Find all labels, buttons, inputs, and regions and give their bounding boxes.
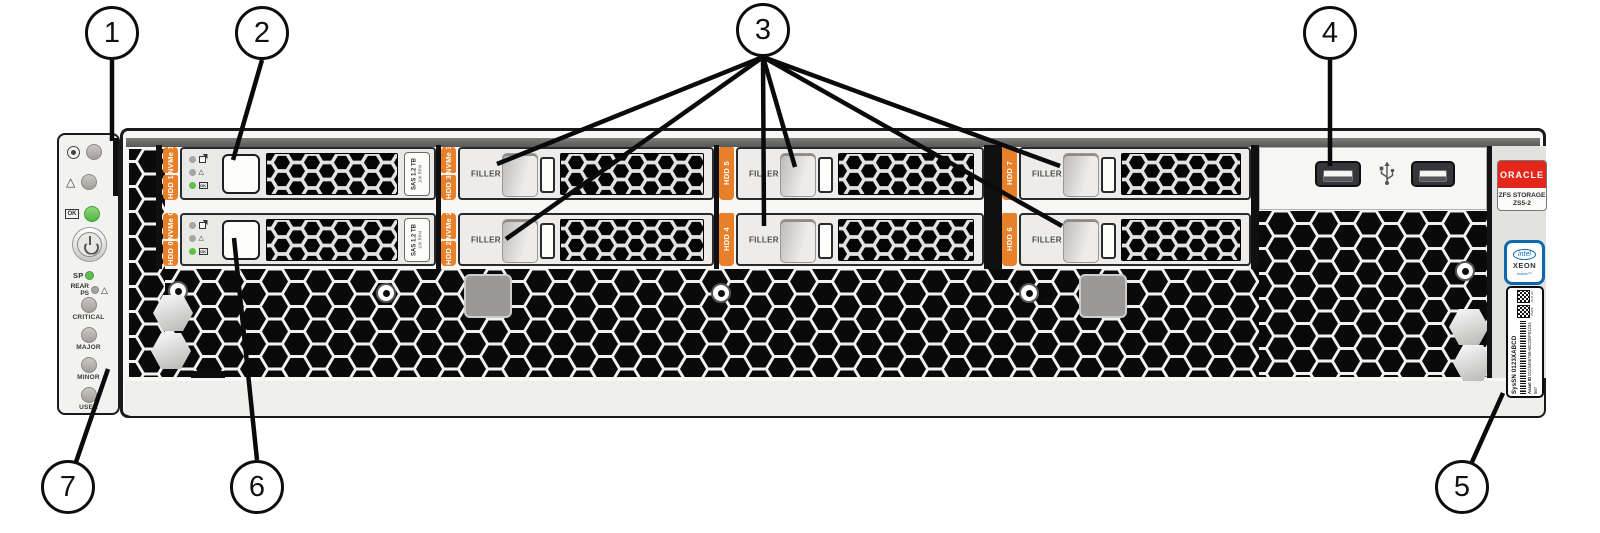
filler-bay-hdd-6: FILLER	[1019, 213, 1251, 266]
rear-ps-led	[91, 286, 99, 294]
bay-divider	[984, 145, 1002, 269]
ok-icon: OK	[199, 248, 208, 255]
alarm-row-critical: CRITICAL	[59, 297, 118, 321]
drive-ok-led	[189, 182, 196, 189]
panel-button-blank	[1079, 274, 1127, 318]
slot-label-text: HDD 3	[444, 175, 453, 199]
slot-label-text: NVMe 3	[444, 147, 453, 173]
drive-release-latch[interactable]	[222, 220, 260, 260]
oracle-logo: ORACLE	[1498, 161, 1546, 188]
filler-label: FILLER	[1032, 235, 1062, 244]
power-button	[72, 227, 107, 262]
sp-led-row: SP	[73, 271, 94, 280]
slot-label-hdd-1: NVMe 1HDD 1	[163, 147, 178, 200]
drive-fault-led	[189, 169, 196, 176]
mesh-pattern	[267, 154, 397, 194]
filler-mesh-face	[838, 153, 974, 195]
drive-remove-led	[189, 156, 196, 163]
drive-bay-hdd-0[interactable]: △OKSAS 1.2 TB10K RPM	[180, 213, 436, 266]
filler-bay-hdd-7: FILLER	[1019, 147, 1251, 200]
mesh-pattern	[267, 220, 397, 260]
slot-label-segment: HDD 6	[1002, 213, 1017, 266]
alarm-row-major: MAJOR	[59, 327, 118, 351]
fault-icon: △	[199, 235, 204, 242]
ok-indicator-row: OK	[65, 206, 100, 222]
filler-latch-lever[interactable]	[1063, 219, 1099, 263]
alarm-row-minor: MINOR	[59, 357, 118, 381]
slot-label-text: HDD 7	[1005, 161, 1014, 185]
drive-led-row: OK	[189, 181, 208, 190]
drive-led-column: △OK	[189, 221, 208, 256]
drive-led-row	[189, 155, 208, 164]
filler-mesh-face	[560, 153, 704, 195]
fault-icon: △	[66, 176, 75, 188]
slot-label-segment: HDD 0	[163, 241, 178, 267]
slot-label-text: NVMe 0	[166, 213, 175, 239]
rear-label: REAR	[61, 283, 89, 290]
filler-latch-lever[interactable]	[780, 153, 816, 197]
usb-port-2[interactable]	[1411, 161, 1455, 187]
fault-indicator-row: △	[66, 174, 97, 190]
drive-bay-hdd-1[interactable]: △OKSAS 1.2 TB10K RPM	[180, 147, 436, 200]
filler-bay-hdd-2: FILLER	[458, 213, 714, 266]
ok-icon: OK	[199, 182, 208, 189]
qr-code-pmrc	[1517, 305, 1530, 318]
slot-label-hdd-5: HDD 5	[719, 147, 734, 200]
system-serial-number: SysSN 0123XABCD	[1512, 321, 1518, 394]
oracle-product-label: ORACLE ZFS STORAGE ZS5-2	[1497, 160, 1547, 211]
rear-ps-led-row: REAR PS △	[61, 283, 108, 298]
screw-hole	[1455, 261, 1475, 281]
slot-label-hdd-3: NVMe 3HDD 3	[441, 147, 456, 200]
filler-latch-tab	[1101, 223, 1116, 259]
vent-dot	[1147, 297, 1153, 303]
major-led	[81, 327, 97, 343]
qr-caption: DoD UII	[1530, 291, 1534, 302]
drive-led-row: OK	[189, 247, 208, 256]
drive-ok-led	[189, 248, 196, 255]
minor-led	[81, 357, 97, 373]
slot-label-text: NVMe 1	[166, 147, 175, 173]
filler-latch-tab	[540, 157, 555, 193]
major-label: MAJOR	[59, 344, 118, 351]
filler-mesh-face	[1121, 153, 1241, 195]
usb-port-1[interactable]	[1315, 161, 1361, 187]
filler-latch-tab	[1101, 157, 1116, 193]
chassis-bottom-band	[125, 381, 1544, 416]
slot-label-segment: HDD 3	[441, 175, 456, 201]
minor-label: MINOR	[59, 374, 118, 381]
product-name: ZFS STORAGE	[1499, 192, 1546, 200]
vent-slot	[191, 371, 225, 378]
mesh-pattern	[561, 220, 703, 260]
filler-mesh-face	[838, 219, 974, 261]
callout-1: 1	[85, 6, 139, 60]
slot-label-segment: NVMe 2	[441, 213, 456, 239]
mesh-pattern	[1122, 154, 1240, 194]
drive-led-row: △	[189, 234, 208, 243]
slot-label-hdd-7: HDD 7	[1002, 147, 1017, 200]
slot-label-segment: NVMe 3	[441, 147, 456, 173]
screw-hole	[1019, 283, 1039, 303]
filler-bay-hdd-4: FILLER	[736, 213, 984, 266]
slot-label-hdd-6: HDD 6	[1002, 213, 1017, 266]
ready-to-remove-icon	[199, 156, 206, 163]
callout-3: 3	[736, 3, 790, 57]
drive-fault-led	[189, 235, 196, 242]
panel-button-blank	[464, 274, 512, 318]
intel-xeon-badge: intel XEON inside™	[1504, 240, 1545, 285]
power-icon	[77, 232, 102, 257]
intel-cpu: XEON	[1513, 261, 1536, 270]
slot-label-hdd-4: HDD 4	[719, 213, 734, 266]
vent-dot	[1043, 297, 1049, 303]
chassis-edge-bar	[113, 138, 118, 196]
qr-caption: PMRC	[1530, 307, 1534, 316]
drive-led-row	[189, 221, 208, 230]
slot-label-segment: HDD 1	[163, 175, 178, 201]
slot-label-segment: NVMe 1	[163, 147, 178, 173]
fault-led	[81, 174, 97, 190]
filler-label: FILLER	[749, 235, 779, 244]
filler-label: FILLER	[749, 169, 779, 178]
intel-logo: intel	[1513, 249, 1536, 260]
callout-4: 4	[1303, 6, 1357, 60]
slot-label-text: HDD 2	[444, 241, 453, 265]
locate-icon	[67, 146, 80, 159]
callout-7: 7	[41, 460, 95, 514]
drive-mesh-face	[266, 153, 398, 195]
locate-led	[86, 144, 102, 160]
screw-hole	[711, 283, 731, 303]
slot-label-segment: HDD 7	[1002, 147, 1017, 200]
fault-icon: △	[199, 169, 204, 176]
callout-6: 6	[230, 460, 284, 514]
user-led	[81, 387, 97, 403]
vent-pattern	[1259, 211, 1487, 377]
slot-label-segment: HDD 2	[441, 241, 456, 267]
chassis: NVMe 1HDD 1△OKSAS 1.2 TB10K RPMNVMe 0HDD…	[120, 128, 1546, 418]
ok-icon: OK	[65, 209, 79, 219]
slot-label-text: NVMe 2	[444, 213, 453, 239]
filler-latch-tab	[818, 223, 833, 259]
slot-label-segment: HDD 5	[719, 147, 734, 200]
qr-code-dod-uii	[1517, 290, 1530, 303]
screw-hole	[376, 283, 396, 303]
slot-label-text: HDD 0	[166, 241, 175, 265]
left-control-panel: △ OK SP REAR PS △ CRITICALMAJORMINORUSER	[57, 133, 120, 415]
filler-bay-hdd-5: FILLER	[736, 147, 984, 200]
drive-spec-label: SAS 1.2 TB10K RPM	[404, 218, 430, 262]
filler-label: FILLER	[471, 169, 501, 178]
vent-dot	[532, 297, 538, 303]
right-vent-grille	[1259, 211, 1487, 377]
filler-latch-lever[interactable]	[502, 219, 538, 263]
filler-mesh-face	[1121, 219, 1241, 261]
slot-label-hdd-0: NVMe 0HDD 0	[163, 213, 178, 266]
drive-led-column: △OK	[189, 155, 208, 190]
callout-2: 2	[235, 6, 289, 60]
bay-divider	[1251, 145, 1259, 269]
server-front-panel-diagram: 1234567 △ OK SP REAR PS △	[0, 0, 1600, 533]
filler-latch-tab	[540, 223, 555, 259]
slot-label-text: HDD 1	[166, 175, 175, 199]
vent-dot	[428, 297, 434, 303]
slot-label-text: HDD 6	[1005, 227, 1014, 251]
drive-led-row: △	[189, 168, 208, 177]
locate-indicator-row	[67, 144, 102, 160]
ok-led	[84, 206, 100, 222]
filler-label: FILLER	[1032, 169, 1062, 178]
drive-release-latch[interactable]	[222, 154, 260, 194]
filler-bay-hdd-3: FILLER	[458, 147, 714, 200]
asset-id-label: Asset ID	[1527, 377, 1532, 394]
serial-number-label: SysSN 0123XABCD Asset ID 0123456789ABCDE…	[1506, 286, 1544, 398]
product-model: ZS5-2	[1513, 200, 1531, 208]
filler-latch-lever[interactable]	[1063, 153, 1099, 197]
bay-divider	[156, 145, 162, 269]
filler-mesh-face	[560, 219, 704, 261]
barcode	[1520, 321, 1526, 394]
slot-label-hdd-2: NVMe 2HDD 2	[441, 213, 456, 266]
mesh-pattern	[839, 220, 973, 260]
filler-label: FILLER	[471, 235, 501, 244]
slot-label-text: HDD 4	[722, 227, 731, 251]
mesh-pattern	[839, 154, 973, 194]
filler-latch-tab	[818, 157, 833, 193]
sp-label: SP	[73, 271, 83, 280]
intel-tagline: inside™	[1517, 271, 1531, 276]
alarm-row-user: USER	[59, 387, 118, 411]
slot-label-text: HDD 5	[722, 161, 731, 185]
critical-label: CRITICAL	[59, 314, 118, 321]
slot-label-segment: HDD 4	[719, 213, 734, 266]
critical-led	[81, 297, 97, 313]
drive-mesh-face	[266, 219, 398, 261]
drive-spec-label: SAS 1.2 TB10K RPM	[404, 152, 430, 196]
filler-latch-lever[interactable]	[780, 219, 816, 263]
drive-remove-led	[189, 222, 196, 229]
usb-icon	[1377, 161, 1397, 187]
chassis-top-strip	[126, 138, 1540, 147]
drive-spec-line2: 10K RPM	[418, 153, 423, 195]
user-label: USER	[59, 404, 118, 411]
filler-latch-lever[interactable]	[502, 153, 538, 197]
mesh-pattern	[561, 154, 703, 194]
ready-to-remove-icon	[199, 222, 206, 229]
slot-label-segment: NVMe 0	[163, 213, 178, 239]
mesh-pattern	[1122, 220, 1240, 260]
callout-5: 5	[1435, 460, 1489, 514]
drive-spec-line2: 10K RPM	[418, 219, 423, 261]
rear-ps-fault-icon: △	[101, 286, 108, 295]
sp-led	[85, 271, 94, 280]
